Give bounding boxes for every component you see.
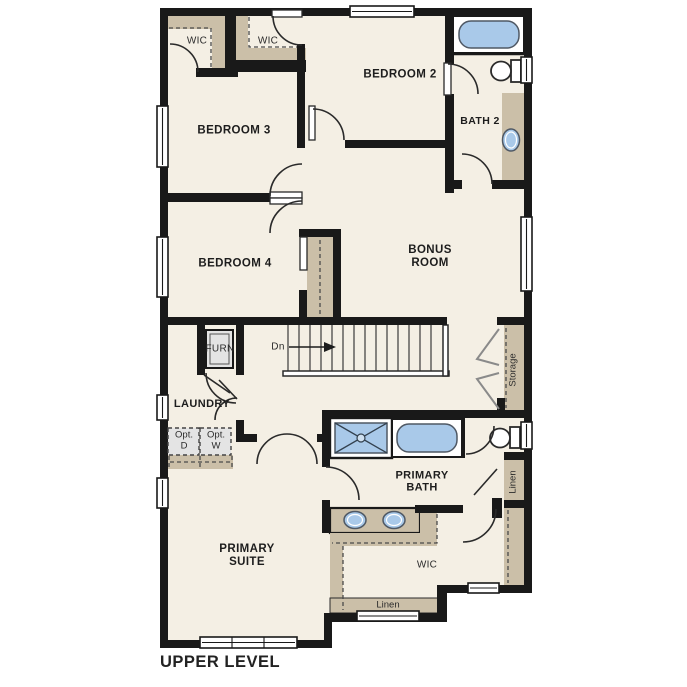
room-label-bedroom4: BEDROOM 4 <box>198 258 271 271</box>
sink-icon <box>383 512 405 529</box>
stairs-direction-label: Dn <box>271 341 284 352</box>
shower-icon <box>330 418 392 458</box>
page-title: UPPER LEVEL <box>160 653 280 672</box>
closet-label-linen-bath: Linen <box>509 470 520 493</box>
optional-dryer-label: Opt. D <box>171 430 197 451</box>
room-label-wic-bedroom2: WIC <box>258 35 278 46</box>
room-label-bedroom3: BEDROOM 3 <box>197 125 270 138</box>
bathtub-icon <box>392 419 462 457</box>
floor-plan-drawing <box>0 0 687 687</box>
sink-icon <box>503 129 520 151</box>
room-label-wic-bedroom3: WIC <box>187 35 207 46</box>
bathtub-icon <box>453 16 524 54</box>
room-label-storage: Storage <box>509 353 520 386</box>
room-label-laundry: LAUNDRY <box>174 398 230 410</box>
room-label-wic-primary: WIC <box>417 559 437 570</box>
room-label-bonus-room: BONUS ROOM <box>398 244 462 270</box>
floor-plan: WIC WIC BEDROOM 2 BATH 2 BEDROOM 3 BEDRO… <box>0 0 687 687</box>
room-label-bedroom2: BEDROOM 2 <box>363 69 436 82</box>
room-label-primary-bath: PRIMARY BATH <box>386 470 458 495</box>
toilet-icon <box>491 60 521 82</box>
room-label-primary-suite: PRIMARY SUITE <box>205 543 289 569</box>
sink-icon <box>344 512 366 529</box>
room-label-bath2: BATH 2 <box>458 116 502 128</box>
room-label-furnace: FURN <box>206 343 235 354</box>
optional-washer-label: Opt. W <box>203 430 229 451</box>
closet-label-linen-wic: Linen <box>376 601 399 612</box>
